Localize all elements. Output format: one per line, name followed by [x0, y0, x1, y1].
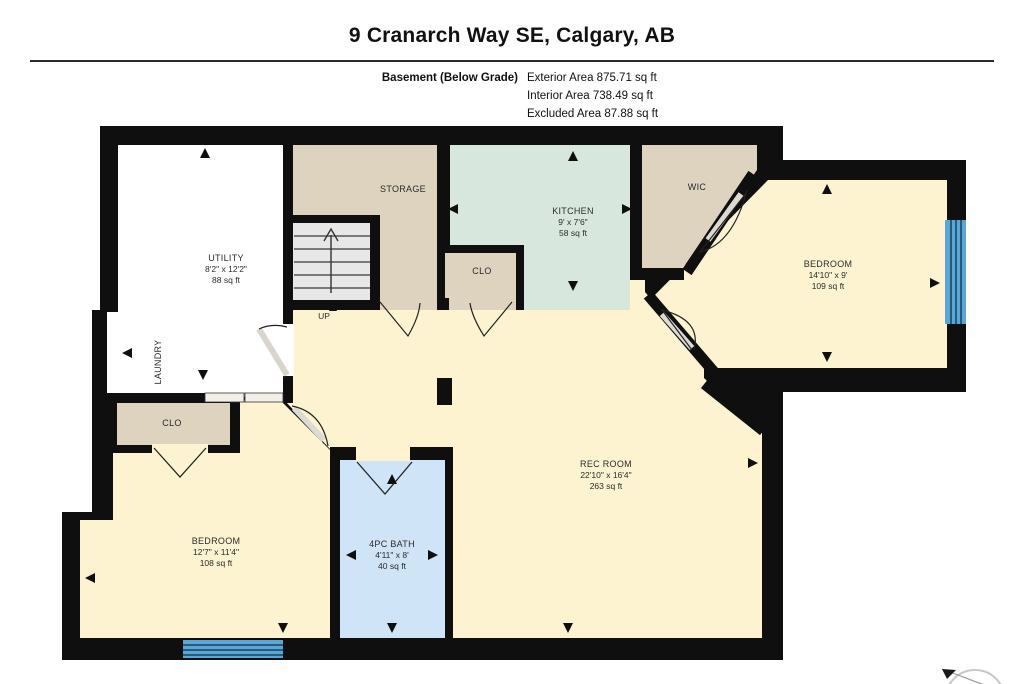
bedroom-left-label: BEDROOM	[192, 536, 241, 546]
bedroom-right-dim: 14'10" x 9'	[809, 270, 848, 280]
room-utility-floor	[107, 145, 283, 397]
bedroom-right-label: BEDROOM	[804, 259, 853, 269]
floorplan-page: 9 Cranarch Way SE, Calgary, AB Basement …	[0, 0, 1024, 684]
room-closet-kitchen-floor	[445, 253, 516, 310]
storage-label: STORAGE	[380, 184, 426, 194]
kitchen-label: KITCHEN	[552, 206, 594, 216]
closet-kitchen-label: CLO	[472, 266, 491, 276]
bath-label: 4PC BATH	[369, 539, 415, 549]
wic-label: WIC	[688, 182, 707, 192]
bath-door-opening	[356, 447, 410, 461]
floorplan-drawing: UTILITY 8'2" x 12'2" 88 sq ft LAUNDRY ST…	[0, 0, 1024, 684]
kitchen-area: 58 sq ft	[559, 228, 588, 238]
stairs-up-label: UP	[318, 311, 330, 321]
rec-room-label: REC ROOM	[580, 459, 632, 469]
rec-room-dim: 22'10" x 16'4"	[580, 470, 631, 480]
bedroom-right-area: 109 sq ft	[812, 281, 845, 291]
laundry-label: LAUNDRY	[153, 340, 163, 385]
utility-dim: 8'2" x 12'2"	[205, 264, 247, 274]
bath-area: 40 sq ft	[378, 561, 407, 571]
closet-left-label: CLO	[162, 418, 181, 428]
kitchen-dim: 9' x 7'6"	[558, 217, 587, 227]
room-bath-floor	[340, 460, 445, 638]
utility-label: UTILITY	[208, 253, 244, 263]
closet-left-door-opening	[152, 444, 208, 454]
bedroom-left-area: 108 sq ft	[200, 558, 233, 568]
bedroom-left-dim: 12'7" x 11'4"	[193, 547, 239, 557]
laundry-door-leaf-a	[205, 393, 244, 402]
laundry-door-leaf-b	[245, 393, 283, 402]
bath-dim: 4'11" x 8'	[375, 550, 409, 560]
compass-icon	[942, 669, 1008, 684]
rec-room-area: 263 sq ft	[590, 481, 623, 491]
utility-area: 88 sq ft	[212, 275, 241, 285]
